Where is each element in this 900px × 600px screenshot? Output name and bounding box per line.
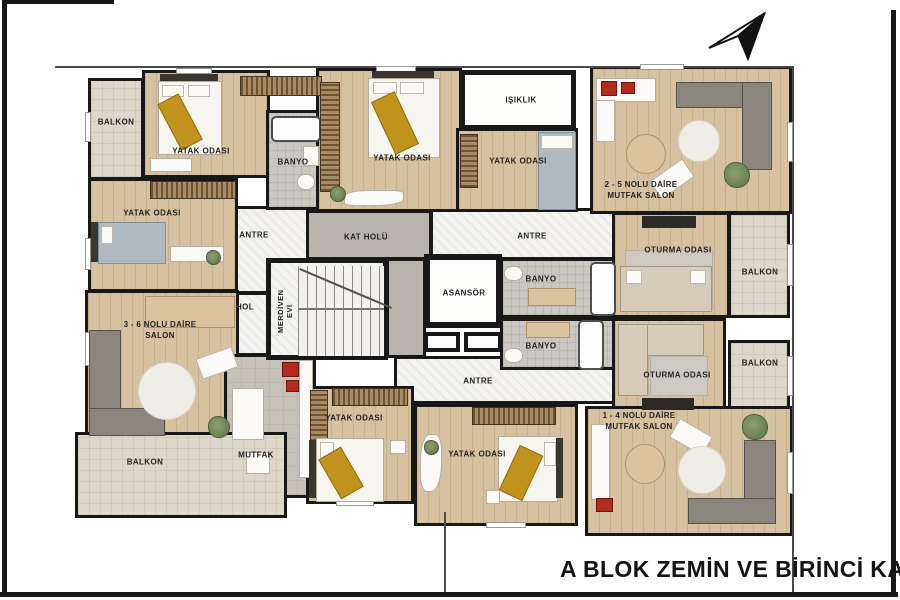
plan-title: A BLOK ZEMİN VE BİRİNCİ KAT PLANI [560, 556, 890, 583]
kitchen-appliance [286, 380, 299, 392]
pillow [101, 226, 113, 244]
wardrobe [472, 407, 556, 425]
lift-shaft-box-2 [464, 332, 502, 352]
stove [282, 362, 299, 377]
toilet [504, 348, 523, 363]
stair-landing-line [298, 308, 384, 310]
plant [724, 162, 750, 188]
bathtub [590, 262, 616, 316]
unit-1-4-name: 1 - 4 NOLU DAİRE [603, 410, 676, 421]
dining-table [625, 444, 665, 484]
bath-counter [528, 288, 576, 306]
label-antre-upper-right: ANTRE [517, 232, 547, 241]
label-balkon-bottom-left: BALKON [127, 458, 164, 467]
round-rug [138, 362, 196, 420]
kitchen-counter [596, 100, 615, 142]
nightstand [390, 440, 406, 454]
room-balkon-bottom-left [75, 432, 287, 518]
room-balkon-right-upper [728, 212, 790, 318]
unit-3-6-name: 3 - 6 NOLU DAİRE [124, 319, 197, 330]
kitchen-counter [591, 424, 610, 500]
pillow [544, 442, 556, 466]
dresser [150, 158, 192, 172]
label-isiklik: IŞIKLIK [505, 96, 536, 105]
wardrobe [240, 76, 322, 96]
bed-headboard [309, 440, 316, 498]
sofa [89, 330, 121, 418]
bed-headboard [556, 438, 563, 498]
bathtub [271, 116, 321, 142]
bathtub [578, 320, 604, 370]
bed-headboard [91, 222, 98, 262]
stove [601, 81, 617, 96]
label-yatak-top-left: YATAK ODASI [172, 147, 230, 156]
label-asansor: ASANSÖR [443, 289, 486, 298]
tv-console [642, 398, 694, 410]
pillow [690, 270, 706, 284]
label-banyo-lower: BANYO [526, 342, 557, 351]
bed-headboard [160, 74, 218, 81]
label-banyo-upper: BANYO [526, 275, 557, 284]
room-kat-holu-ext [386, 258, 426, 358]
label-oturma-upper: OTURMA ODASI [644, 246, 711, 255]
stove [596, 498, 613, 512]
label-unit-3-6: 3 - 6 NOLU DAİRE SALON [124, 319, 197, 341]
vanity [344, 190, 404, 206]
label-banyo-left: BANYO [278, 158, 309, 167]
frame-right [891, 10, 896, 597]
dining-table [626, 134, 666, 174]
room-balkon-top-left [88, 78, 144, 180]
label-yatak-left: YATAK ODASI [123, 209, 181, 218]
frame-bottom [0, 592, 898, 597]
sofa [742, 82, 772, 170]
wardrobe [460, 134, 478, 188]
label-oturma-lower: OTURMA ODASI [643, 371, 710, 380]
pillow [626, 270, 642, 284]
nightstand [486, 490, 500, 504]
label-mutfak: MUTFAK [238, 451, 274, 460]
wardrobe [320, 82, 340, 192]
wardrobe [150, 181, 236, 199]
window [787, 452, 793, 494]
label-kat-holu: KAT HOLÜ [344, 233, 388, 242]
bed-headboard [372, 71, 434, 78]
plant [206, 250, 221, 265]
tv-console [642, 216, 696, 228]
label-merdiven-evi: MERDİVEN EVİ [276, 280, 294, 342]
unit-2-5-name: 2 - 5 NOLU DAİRE [605, 179, 678, 190]
label-antre-bottom: ANTRE [463, 377, 493, 386]
plant [742, 414, 768, 440]
round-rug [678, 120, 720, 162]
plant [208, 416, 230, 438]
merdiven-line2: EVİ [285, 304, 294, 318]
unit-1-4-room: MUTFAK SALON [603, 421, 676, 432]
label-unit-2-5: 2 - 5 NOLU DAİRE MUTFAK SALON [605, 179, 678, 201]
frame-left [2, 0, 7, 597]
unit-3-6-room: SALON [124, 330, 197, 341]
north-arrow-icon [703, 8, 775, 62]
toilet [297, 174, 315, 190]
label-balkon-right-lower: BALKON [742, 359, 779, 368]
lift-shaft-box-1 [424, 332, 460, 352]
label-yatak-top-right: YATAK ODASI [489, 157, 547, 166]
kitchen-island [232, 388, 264, 440]
label-unit-1-4: 1 - 4 NOLU DAİRE MUTFAK SALON [603, 410, 676, 432]
plant [330, 186, 346, 202]
bath-counter [526, 322, 570, 338]
pillow [541, 135, 573, 149]
sheet-fold-line [444, 512, 446, 592]
merdiven-line1: MERDİVEN [276, 289, 285, 333]
label-balkon-top-left: BALKON [98, 118, 135, 127]
label-yatak-bottom-left: YATAK ODASI [325, 414, 383, 423]
kitchen-appliance [621, 82, 635, 94]
window [787, 356, 793, 396]
wardrobe [332, 388, 408, 406]
pillow [400, 82, 424, 94]
sofa-chaise [618, 324, 648, 396]
toilet [504, 266, 523, 281]
label-hol: HOL [236, 303, 254, 312]
label-yatak-bottom-center: YATAK ODASI [448, 450, 506, 459]
round-rug [678, 446, 726, 494]
stairs [298, 266, 384, 356]
window [85, 112, 91, 142]
label-yatak-top-center: YATAK ODASI [373, 154, 431, 163]
floor-plan-sheet: BALKON YATAK ODASI BANYO YATAK ODASI ANT… [0, 0, 900, 600]
label-antre-left: ANTRE [239, 231, 269, 240]
label-balkon-right-upper: BALKON [742, 268, 779, 277]
window [640, 64, 684, 70]
unit-2-5-room: MUTFAK SALON [605, 190, 678, 201]
window [787, 244, 793, 286]
sofa [688, 498, 776, 524]
frame-top [2, 0, 114, 4]
plant [424, 440, 439, 455]
pillow [188, 85, 210, 97]
window [486, 522, 526, 528]
window [787, 122, 793, 162]
